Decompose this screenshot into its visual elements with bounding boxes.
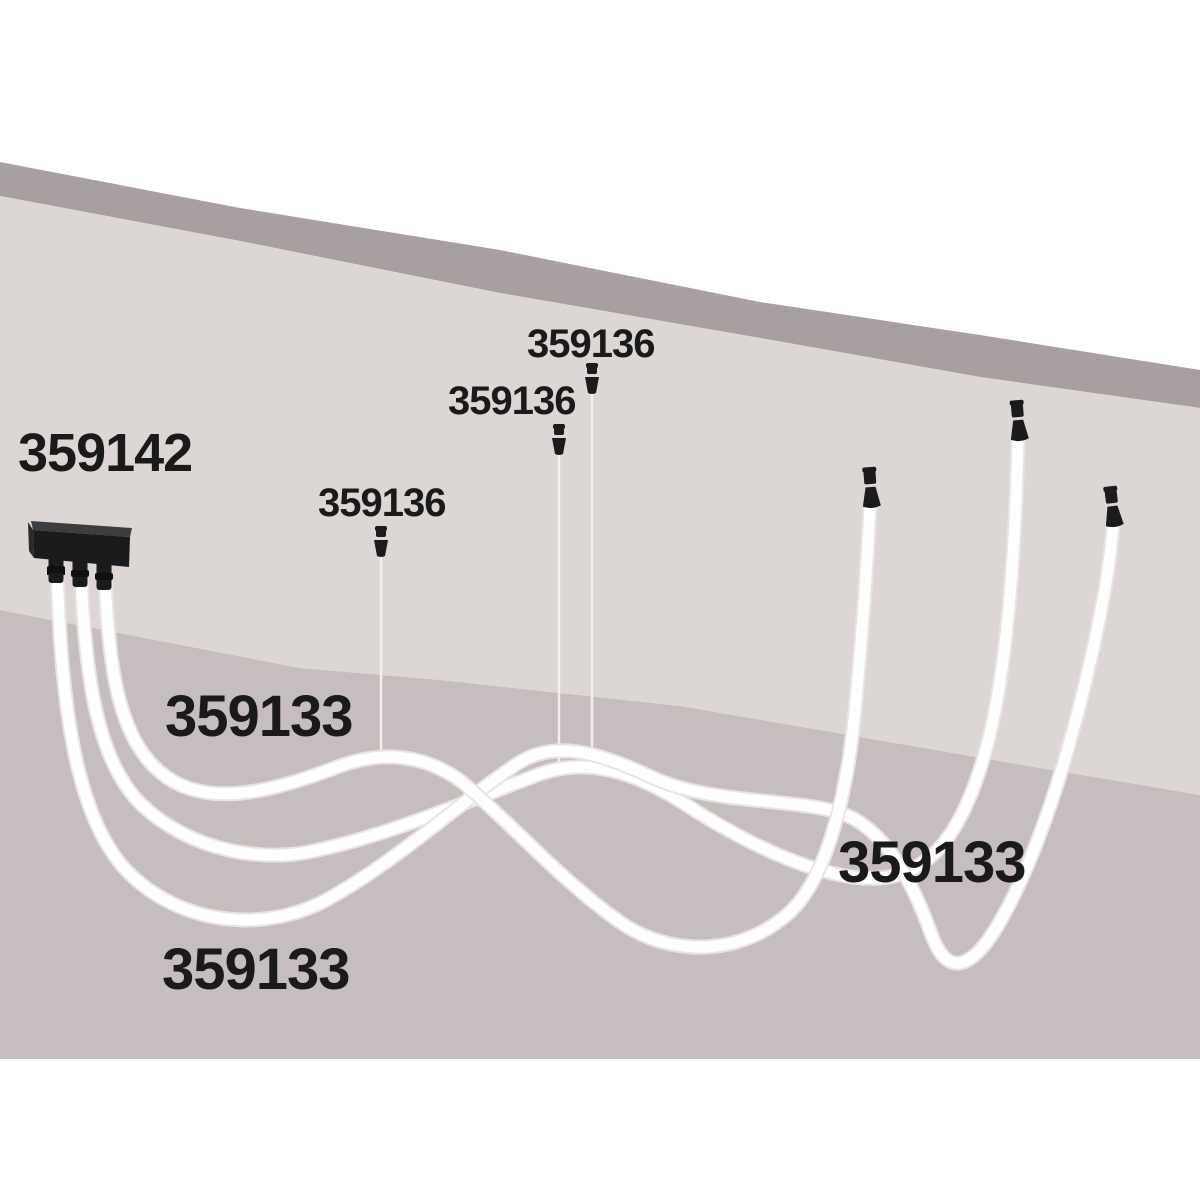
driver-box-connector-2-collar bbox=[71, 570, 89, 577]
room-background bbox=[0, 0, 1200, 1200]
label-suspension-grip-3: 359136 bbox=[527, 322, 654, 366]
driver-box-connector-3-collar bbox=[95, 573, 113, 580]
label-flex-tube-3: 359133 bbox=[838, 830, 1026, 895]
driver-box-connector-1-collar bbox=[47, 566, 65, 573]
label-suspension-grip-1: 359136 bbox=[318, 481, 445, 525]
product-installation-diagram: 359142 359136 359136 359136 359133 35913… bbox=[0, 0, 1200, 1200]
label-flex-tube-1: 359133 bbox=[165, 684, 353, 749]
label-suspension-grip-2: 359136 bbox=[448, 379, 575, 423]
label-flex-tube-2: 359133 bbox=[162, 937, 350, 1002]
label-driver-box: 359142 bbox=[18, 423, 192, 483]
